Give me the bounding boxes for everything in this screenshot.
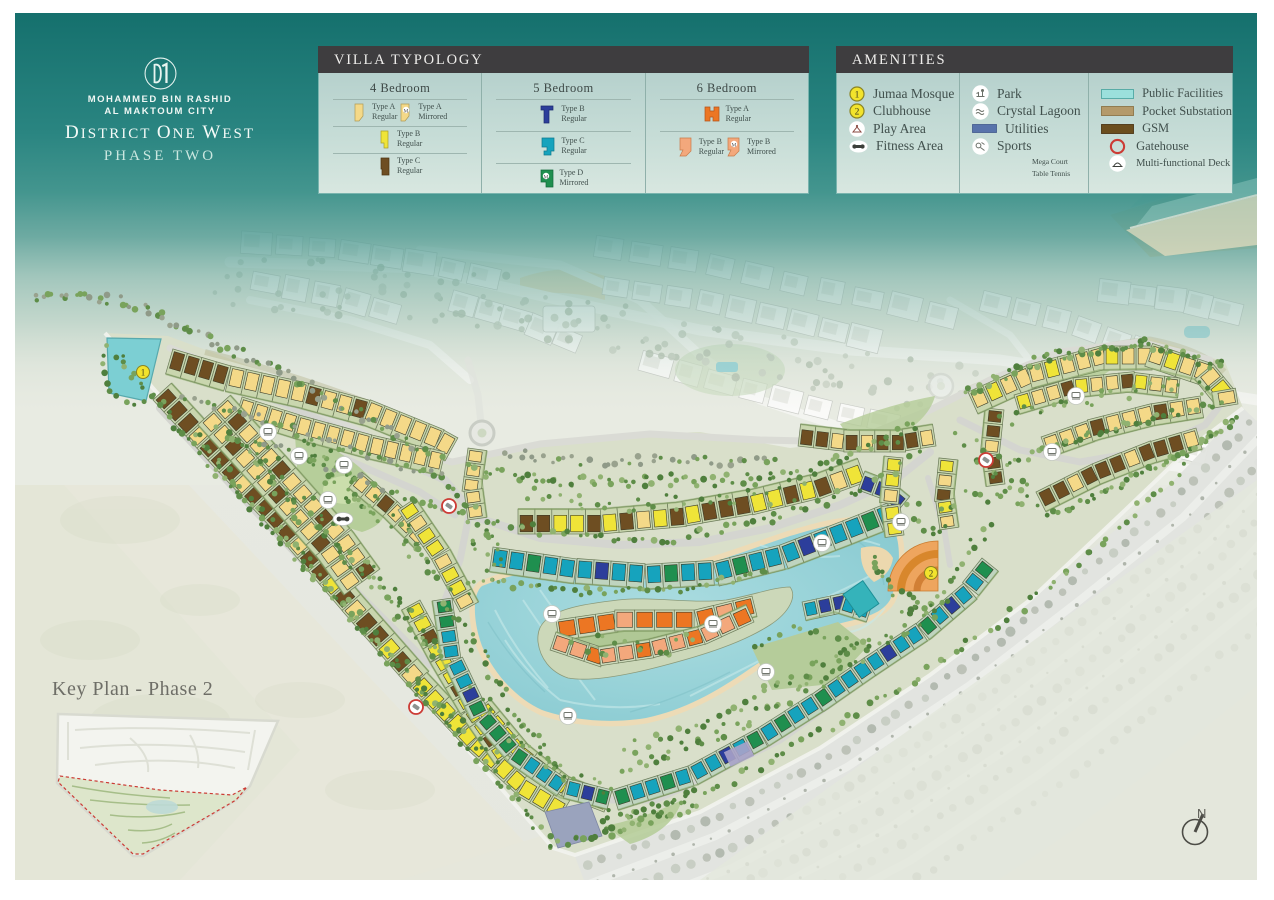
svg-text:M: M (404, 108, 409, 114)
svg-text:N: N (1197, 806, 1206, 821)
svg-text:M: M (732, 142, 737, 148)
svg-text:1: 1 (141, 368, 146, 378)
svg-text:2: 2 (929, 569, 934, 579)
svg-text:1: 1 (855, 90, 860, 100)
svg-text:M: M (543, 174, 548, 180)
svg-text:2: 2 (855, 108, 860, 118)
